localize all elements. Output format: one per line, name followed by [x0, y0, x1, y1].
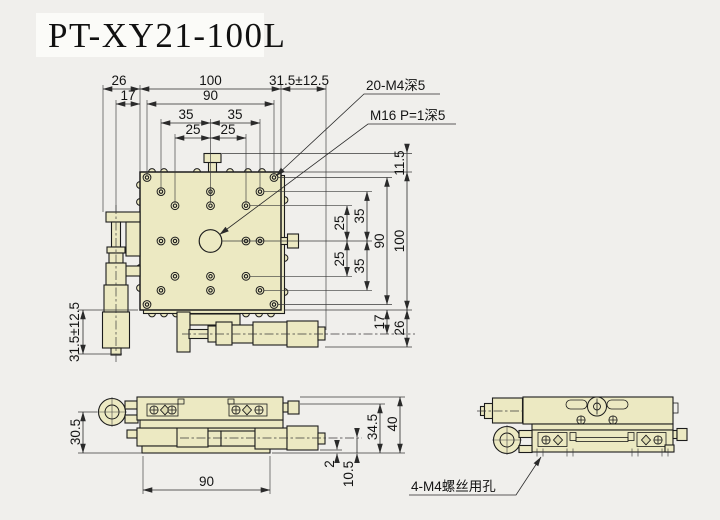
dim-right-26: 26: [392, 320, 407, 335]
side-lower-body: [532, 430, 673, 452]
plan-dimensions-left: 31.5±12.5: [67, 302, 83, 362]
dim-top-25l: 25: [185, 122, 200, 137]
drawing-canvas: PT-XY21-100L: [0, 0, 720, 520]
center-hole-note: M16 P=1深5: [370, 108, 445, 123]
dim-right-100: 100: [392, 230, 407, 253]
mount-note: 4-M4螺丝用孔: [411, 479, 496, 494]
drawing-page: PT-XY21-100L: [0, 0, 720, 520]
dim-top-90: 90: [203, 88, 218, 103]
dim-top-100: 100: [199, 73, 222, 88]
dim-front-40: 40: [385, 416, 400, 431]
dim-right-25u: 25: [332, 215, 347, 230]
side-mid-plate: [532, 424, 673, 430]
holes-note: 20-M4深5: [366, 78, 425, 93]
dim-top-travel: 31.5±12.5: [269, 73, 329, 88]
drawing-title: PT-XY21-100L: [48, 16, 286, 55]
dim-top-35l: 35: [178, 107, 193, 122]
dim-front-90: 90: [199, 474, 214, 489]
dim-right-90: 90: [372, 233, 387, 248]
m16-center-hole: [199, 230, 222, 253]
front-side-knob: [283, 401, 299, 414]
front-mid-plate: [140, 420, 283, 428]
dim-front-2: 2: [322, 460, 337, 468]
dim-front-345: 34.5: [365, 414, 380, 440]
dim-left-travel: 31.5±12.5: [67, 302, 82, 362]
dim-right-25d: 25: [332, 251, 347, 266]
dim-top-35r: 35: [227, 107, 242, 122]
dim-front-105: 10.5: [341, 461, 356, 487]
side-right-knob: [673, 429, 687, 441]
dim-right-35u: 35: [352, 208, 367, 223]
dim-top-17: 17: [120, 88, 135, 103]
dim-right-35d: 35: [352, 258, 367, 273]
dim-front-305: 30.5: [68, 419, 83, 445]
dim-top-25r: 25: [220, 122, 235, 137]
dim-top-26: 26: [111, 73, 126, 88]
dim-right-17: 17: [372, 314, 387, 329]
dim-right-115: 11.5: [392, 150, 407, 175]
